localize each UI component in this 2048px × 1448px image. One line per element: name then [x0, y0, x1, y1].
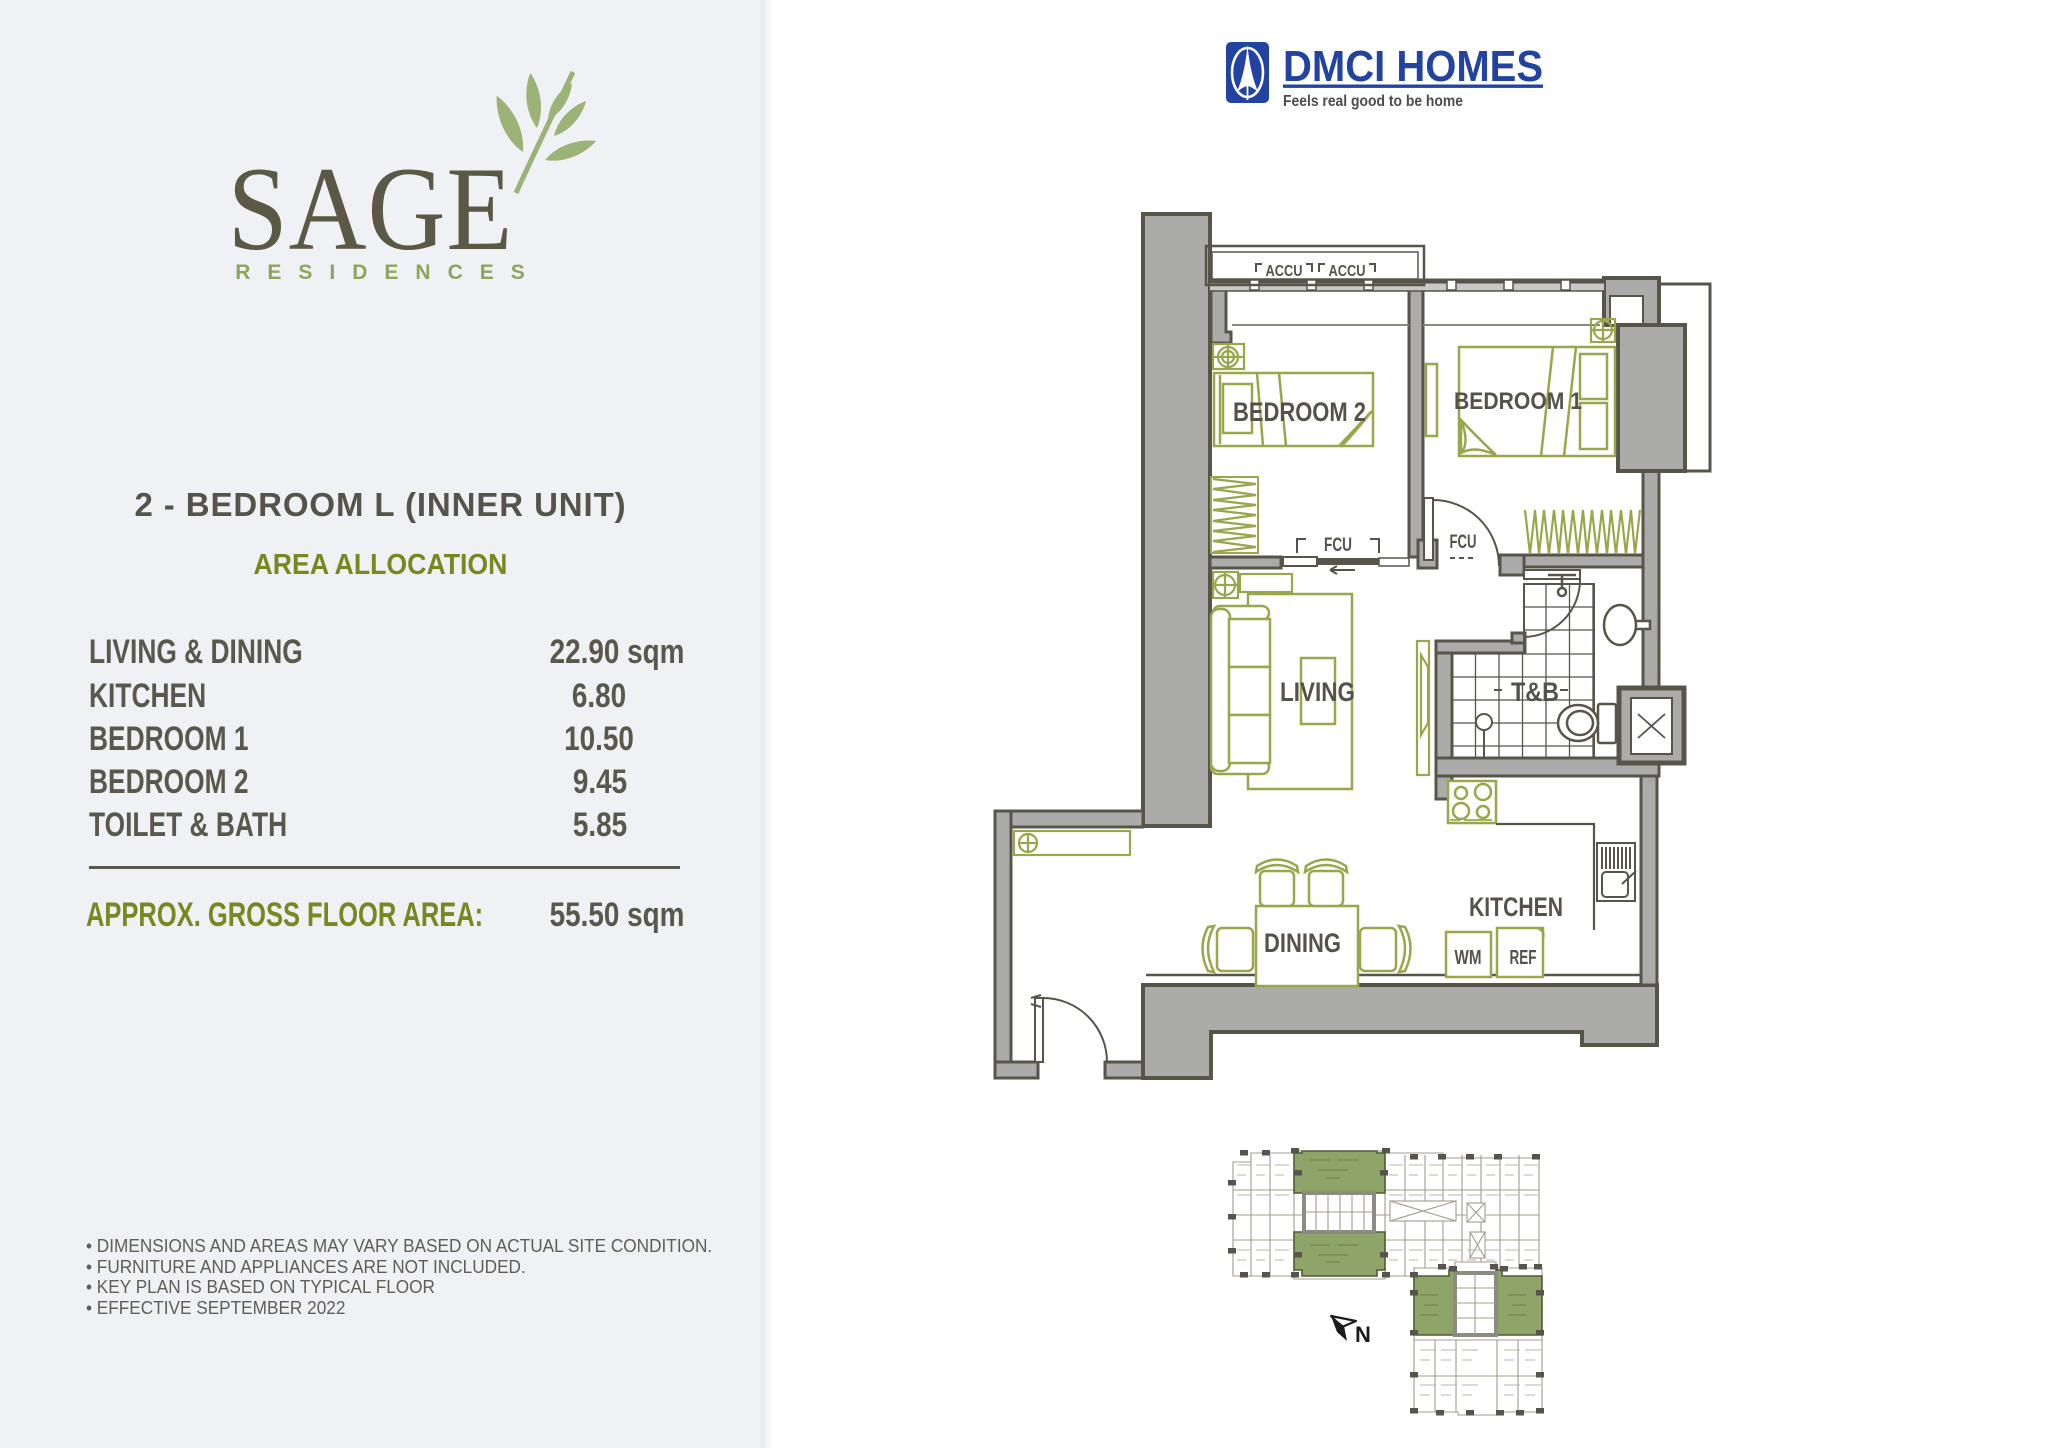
svg-text:KITCHEN: KITCHEN [1469, 892, 1563, 922]
svg-text:BEDROOM 1: BEDROOM 1 [1454, 388, 1582, 415]
svg-text:FCU: FCU [1324, 535, 1352, 556]
svg-text:ACCU: ACCU [1266, 263, 1303, 280]
svg-text:FCU: FCU [1450, 532, 1477, 553]
svg-text:BEDROOM 2: BEDROOM 2 [1233, 397, 1366, 427]
svg-text:WM: WM [1455, 947, 1482, 969]
svg-text:LIVING: LIVING [1280, 677, 1355, 707]
svg-text:REF: REF [1510, 947, 1537, 969]
svg-text:ACCU: ACCU [1329, 263, 1366, 280]
svg-text:N: N [1355, 1322, 1371, 1347]
svg-text:T&B: T&B [1511, 677, 1559, 707]
svg-text:DINING: DINING [1264, 928, 1341, 958]
